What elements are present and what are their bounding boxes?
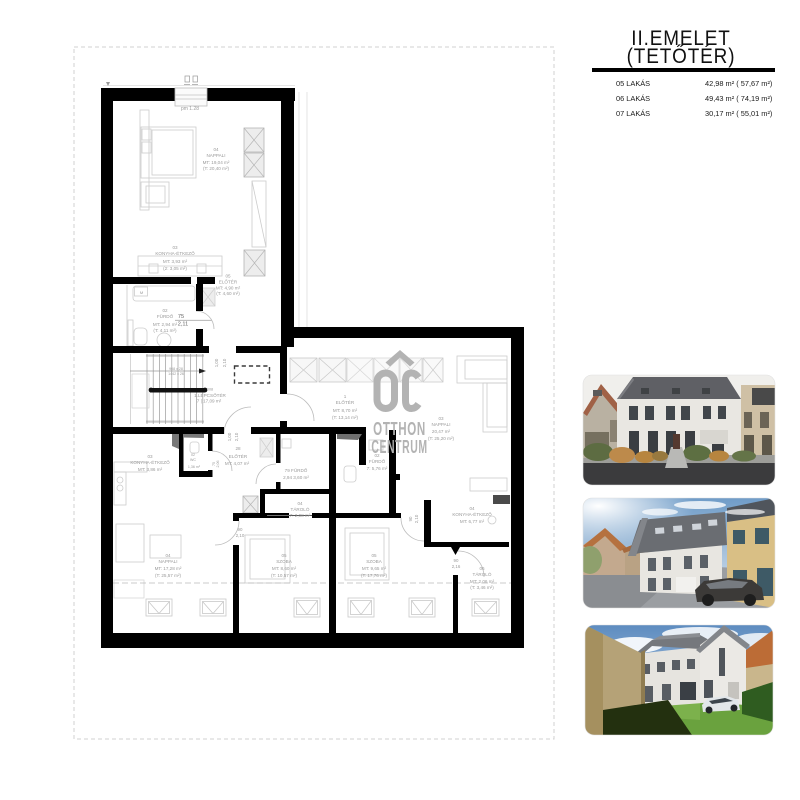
svg-text:79 FÜRDŐ: 79 FÜRDŐ [285, 467, 308, 473]
svg-text:MT: 2,94 m²: MT: 2,94 m² [153, 322, 178, 327]
svg-text:MT: 3,93 m²: MT: 3,93 m² [163, 259, 188, 264]
svg-text:NAPPALI: NAPPALI [206, 153, 225, 158]
svg-text:7: 2,08 m²: 7: 2,08 m² [290, 513, 311, 518]
svg-text:02: 02 [191, 453, 195, 457]
svg-text:MT: 4,90 m²: MT: 4,90 m² [216, 286, 241, 291]
svg-text:SZOBA: SZOBA [276, 559, 293, 564]
svg-text:2,94 3,60 m²: 2,94 3,60 m² [283, 475, 309, 480]
svg-text:03: 03 [147, 454, 153, 459]
svg-text:ELŐTÉR: ELŐTÉR [219, 279, 238, 285]
svg-text:2,10: 2,10 [222, 358, 227, 367]
svg-text:MT: 3,86 m²: MT: 3,86 m² [138, 467, 163, 472]
svg-text:ELŐTÉR: ELŐTÉR [336, 399, 355, 405]
svg-text:M: M [140, 290, 143, 295]
svg-text:7: 5,76 m²: 7: 5,76 m² [367, 466, 388, 471]
svg-text:1,00: 1,00 [227, 432, 232, 441]
svg-text:49,43 m² ( 74,19 m²): 49,43 m² ( 74,19 m²) [705, 94, 772, 103]
svg-text:(T: 4,60 m²): (T: 4,60 m²) [216, 291, 240, 296]
svg-text:04: 04 [213, 147, 219, 152]
svg-text:NAPPALI: NAPPALI [158, 559, 177, 564]
svg-text:90: 90 [408, 516, 413, 521]
svg-text:MT: 19,04 m²: MT: 19,04 m² [203, 160, 230, 165]
svg-text:CENTRUM: CENTRUM [371, 437, 427, 458]
svg-text:KONYHA-ÉTKEZŐ: KONYHA-ÉTKEZŐ [130, 459, 170, 465]
svg-text:(T: 4,11 m²): (T: 4,11 m²) [153, 328, 177, 333]
svg-text:75: 75 [178, 314, 184, 320]
svg-text:2,16: 2,16 [452, 564, 461, 569]
svg-text:7 | 17,09 m²: 7 | 17,09 m² [197, 399, 222, 404]
svg-text:2,10: 2,10 [414, 514, 419, 523]
svg-text:42,98 m² ( 57,67 m²): 42,98 m² ( 57,67 m²) [705, 79, 772, 88]
svg-text:06: 06 [479, 566, 485, 571]
svg-text:WC: WC [190, 458, 196, 462]
svg-text:04: 04 [297, 501, 303, 506]
svg-text:NAPPALI: NAPPALI [431, 422, 450, 427]
svg-text:1,00: 1,00 [214, 358, 219, 367]
svg-text:MT: 8,70 m²: MT: 8,70 m² [333, 408, 358, 413]
svg-text:(T: 20,40 m²): (T: 20,40 m²) [203, 166, 230, 171]
svg-text:(TETŐTÉR): (TETŐTÉR) [627, 44, 736, 68]
svg-text:(T: 10,57 m²): (T: 10,57 m²) [271, 573, 298, 578]
svg-text:2,06: 2,06 [216, 461, 220, 468]
svg-text:05: 05 [371, 553, 377, 558]
svg-text:(T: 25,20 m²): (T: 25,20 m²) [428, 436, 455, 441]
svg-text:MT: 2,06 m²: MT: 2,06 m² [470, 579, 495, 584]
svg-text:FÜRDŐ: FÜRDŐ [369, 458, 386, 464]
svg-text:(T: 3,46 m²): (T: 3,46 m²) [470, 585, 494, 590]
svg-text:90: 90 [454, 558, 459, 563]
svg-text:SZOBA: SZOBA [366, 559, 383, 564]
svg-text:1,36 m²: 1,36 m² [188, 465, 201, 469]
svg-text:02: 02 [162, 308, 168, 313]
svg-text:1.LÉPCSŐTÉR: 1.LÉPCSŐTÉR [194, 392, 226, 398]
svg-text:KONYHA-ÉTKEZŐ: KONYHA-ÉTKEZŐ [155, 250, 195, 256]
svg-text:06 LAKÁS: 06 LAKÁS [616, 94, 650, 103]
svg-text:30,17 m² ( 55,01 m²): 30,17 m² ( 55,01 m²) [705, 109, 772, 118]
svg-text:20,47 m²: 20,47 m² [432, 429, 451, 434]
svg-text:908 x 28: 908 x 28 [169, 367, 183, 371]
svg-text:TÁROLÓ: TÁROLÓ [291, 506, 310, 512]
svg-text:05: 05 [281, 553, 287, 558]
svg-text:(T: 13,14 m²): (T: 13,14 m²) [332, 415, 359, 420]
svg-text:pm 1.28: pm 1.28 [181, 106, 199, 112]
svg-text:2,10: 2,10 [234, 432, 239, 441]
svg-text:TÁROLÓ: TÁROLÓ [473, 571, 492, 577]
svg-text:(T: 17,76 m²): (T: 17,76 m²) [361, 573, 388, 578]
svg-text:04: 04 [469, 506, 475, 511]
svg-text:03: 03 [172, 245, 178, 250]
svg-text:03: 03 [438, 416, 444, 421]
svg-text:MT: 8,60 m²: MT: 8,60 m² [272, 566, 297, 571]
svg-text:2,11: 2,11 [178, 322, 188, 328]
svg-text:02: 02 [374, 453, 380, 458]
svg-text:008: 008 [207, 388, 213, 392]
svg-text:MT: 17,28 m²: MT: 17,28 m² [155, 566, 182, 571]
svg-text:2,10: 2,10 [236, 533, 245, 538]
svg-text:90: 90 [238, 527, 243, 532]
svg-text:KONYHA-ÉTKEZŐ: KONYHA-ÉTKEZŐ [452, 511, 492, 517]
svg-text:05 LAKÁS: 05 LAKÁS [616, 79, 650, 88]
svg-text:1442 x 26: 1442 x 26 [168, 372, 184, 376]
svg-text:ELŐTÉR: ELŐTÉR [229, 453, 248, 459]
svg-text:FÜRDŐ: FÜRDŐ [157, 313, 174, 319]
svg-text:07 LAKÁS: 07 LAKÁS [616, 109, 650, 118]
svg-text:(T: 25,57 m²): (T: 25,57 m²) [155, 573, 182, 578]
svg-text:MT: 4,07 m²: MT: 4,07 m² [225, 461, 250, 466]
svg-text:28: 28 [235, 446, 241, 451]
svg-text:05: 05 [225, 274, 231, 279]
svg-text:MT: 6,77 m²: MT: 6,77 m² [460, 519, 485, 524]
svg-text:04: 04 [165, 553, 171, 558]
svg-text:1: 1 [344, 394, 347, 399]
svg-text:MT: 9,65 m²: MT: 9,65 m² [362, 566, 387, 571]
svg-text:(2: 3,05 m²): (2: 3,05 m²) [163, 266, 187, 271]
